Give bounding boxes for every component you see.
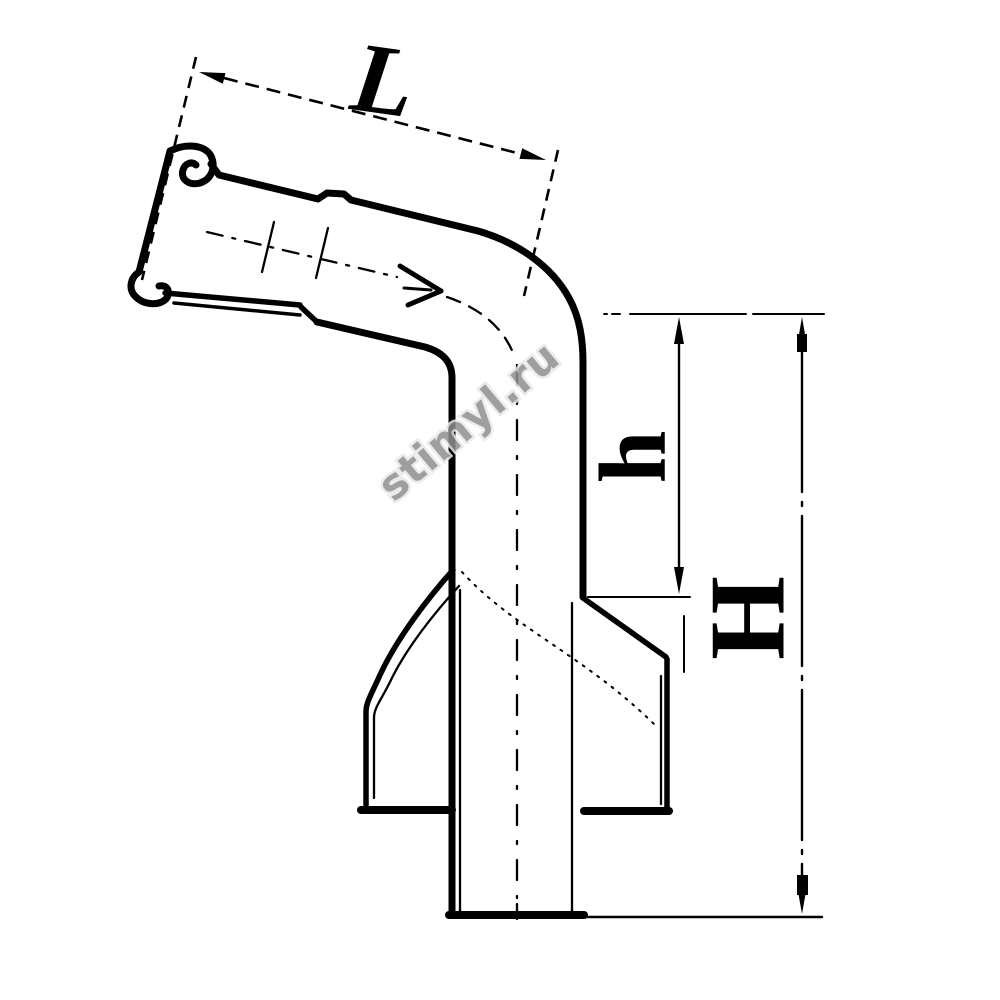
dimension-L: L xyxy=(142,21,558,296)
skirt-left-outer xyxy=(366,570,453,806)
sealing-skirt xyxy=(361,570,669,811)
socket-inlet-outline xyxy=(131,146,583,915)
skirt-right-diagonal xyxy=(583,598,666,657)
h-arrowhead-top xyxy=(674,317,684,344)
H-arrow-blob-bottom xyxy=(797,875,808,895)
inlet-centerline xyxy=(207,232,397,277)
dimension-h: h xyxy=(580,317,686,594)
pipe-elbow-drawing: L h H stimyl.ru xyxy=(0,0,1000,1000)
socket-end-face xyxy=(139,151,170,272)
label-h: h xyxy=(580,431,686,484)
lower-lug-curl xyxy=(131,272,168,304)
flow-direction-arrow xyxy=(400,266,441,305)
label-L: L xyxy=(344,21,421,140)
upper-lug-curl xyxy=(170,146,213,184)
bend-centerline-curve xyxy=(447,297,515,358)
centerline-tick-2 xyxy=(316,228,328,278)
l-arrowhead-right xyxy=(520,148,547,160)
technical-drawing-canvas: L h H stimyl.ru xyxy=(0,0,1000,1000)
label-H: H xyxy=(689,576,808,660)
watermark-text: stimyl.ru xyxy=(368,331,568,510)
skirt-contour-dotted xyxy=(462,572,658,728)
dimension-H: H xyxy=(689,317,809,914)
H-arrow-blob-top xyxy=(797,334,807,352)
l-arrowhead-left xyxy=(199,72,226,84)
centerlines xyxy=(207,222,517,919)
h-arrowhead-bottom xyxy=(674,567,684,594)
